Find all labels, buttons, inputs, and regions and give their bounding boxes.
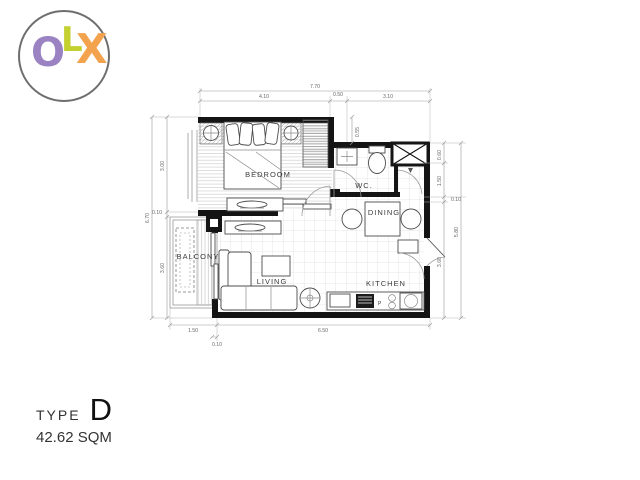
svg-text:5.80: 5.80: [454, 227, 460, 237]
svg-text:3.10: 3.10: [383, 94, 393, 100]
bedside-unit-icon: [200, 123, 222, 144]
floorplan-page: O L X: [0, 0, 640, 480]
pillow: [226, 123, 241, 145]
pillow: [265, 122, 280, 144]
room-label-balcony: BALCONY: [177, 252, 220, 261]
svg-text:1.50: 1.50: [188, 328, 198, 334]
room-label-wc: WC.: [355, 181, 373, 190]
svg-text:3.60: 3.60: [437, 257, 443, 267]
bedside-unit-icon: [281, 123, 301, 144]
chair-icon: [401, 209, 421, 229]
chair-icon: [342, 209, 362, 229]
tv-console-icon: [225, 221, 281, 234]
room-label-living: LIVING: [257, 277, 288, 286]
svg-text:3.00: 3.00: [160, 161, 166, 171]
shaft-x-icon: [392, 143, 428, 165]
svg-text:0.60: 0.60: [437, 150, 443, 160]
cabinet-icon: [330, 294, 350, 307]
basin-icon: [337, 148, 357, 165]
svg-text:0.10: 0.10: [152, 210, 162, 216]
pillow: [252, 123, 266, 145]
kitchen-counter: P: [327, 292, 424, 310]
room-label-dining: DINING: [368, 208, 400, 217]
wardrobe-icon: [303, 120, 328, 167]
type-value: D: [90, 392, 112, 428]
svg-text:0.10: 0.10: [451, 197, 461, 203]
type-label: TYPE: [36, 407, 81, 423]
coffee-table-icon: [262, 256, 290, 276]
svg-text:0.10: 0.10: [212, 342, 222, 348]
toilet-icon: [369, 146, 386, 174]
fridge-icon: [398, 240, 418, 253]
pillow: [239, 122, 253, 145]
svg-text:0.55: 0.55: [355, 127, 361, 137]
room-label-kitchen: KITCHEN: [366, 279, 406, 288]
room-label-bedroom: BEDROOM: [245, 170, 291, 179]
svg-text:0.50: 0.50: [333, 92, 343, 98]
bedroom-window: [188, 130, 197, 202]
svg-text:4.10: 4.10: [259, 94, 269, 100]
svg-text:3.60: 3.60: [160, 263, 166, 273]
svg-text:7.70: 7.70: [310, 84, 320, 90]
kitchen-sink-icon: [400, 293, 422, 309]
balcony-decking: [197, 220, 212, 305]
floor-lamp-icon: [300, 288, 320, 308]
tv-console-icon: [227, 198, 283, 211]
svg-text:6.50: 6.50: [318, 328, 328, 334]
svg-text:1.50: 1.50: [437, 176, 443, 186]
area-label: 42.62 SQM: [36, 429, 112, 446]
svg-text:6.70: 6.70: [145, 213, 151, 223]
stove-icon: [356, 294, 374, 308]
unit-type-block: TYPE D 42.62 SQM: [36, 392, 112, 446]
